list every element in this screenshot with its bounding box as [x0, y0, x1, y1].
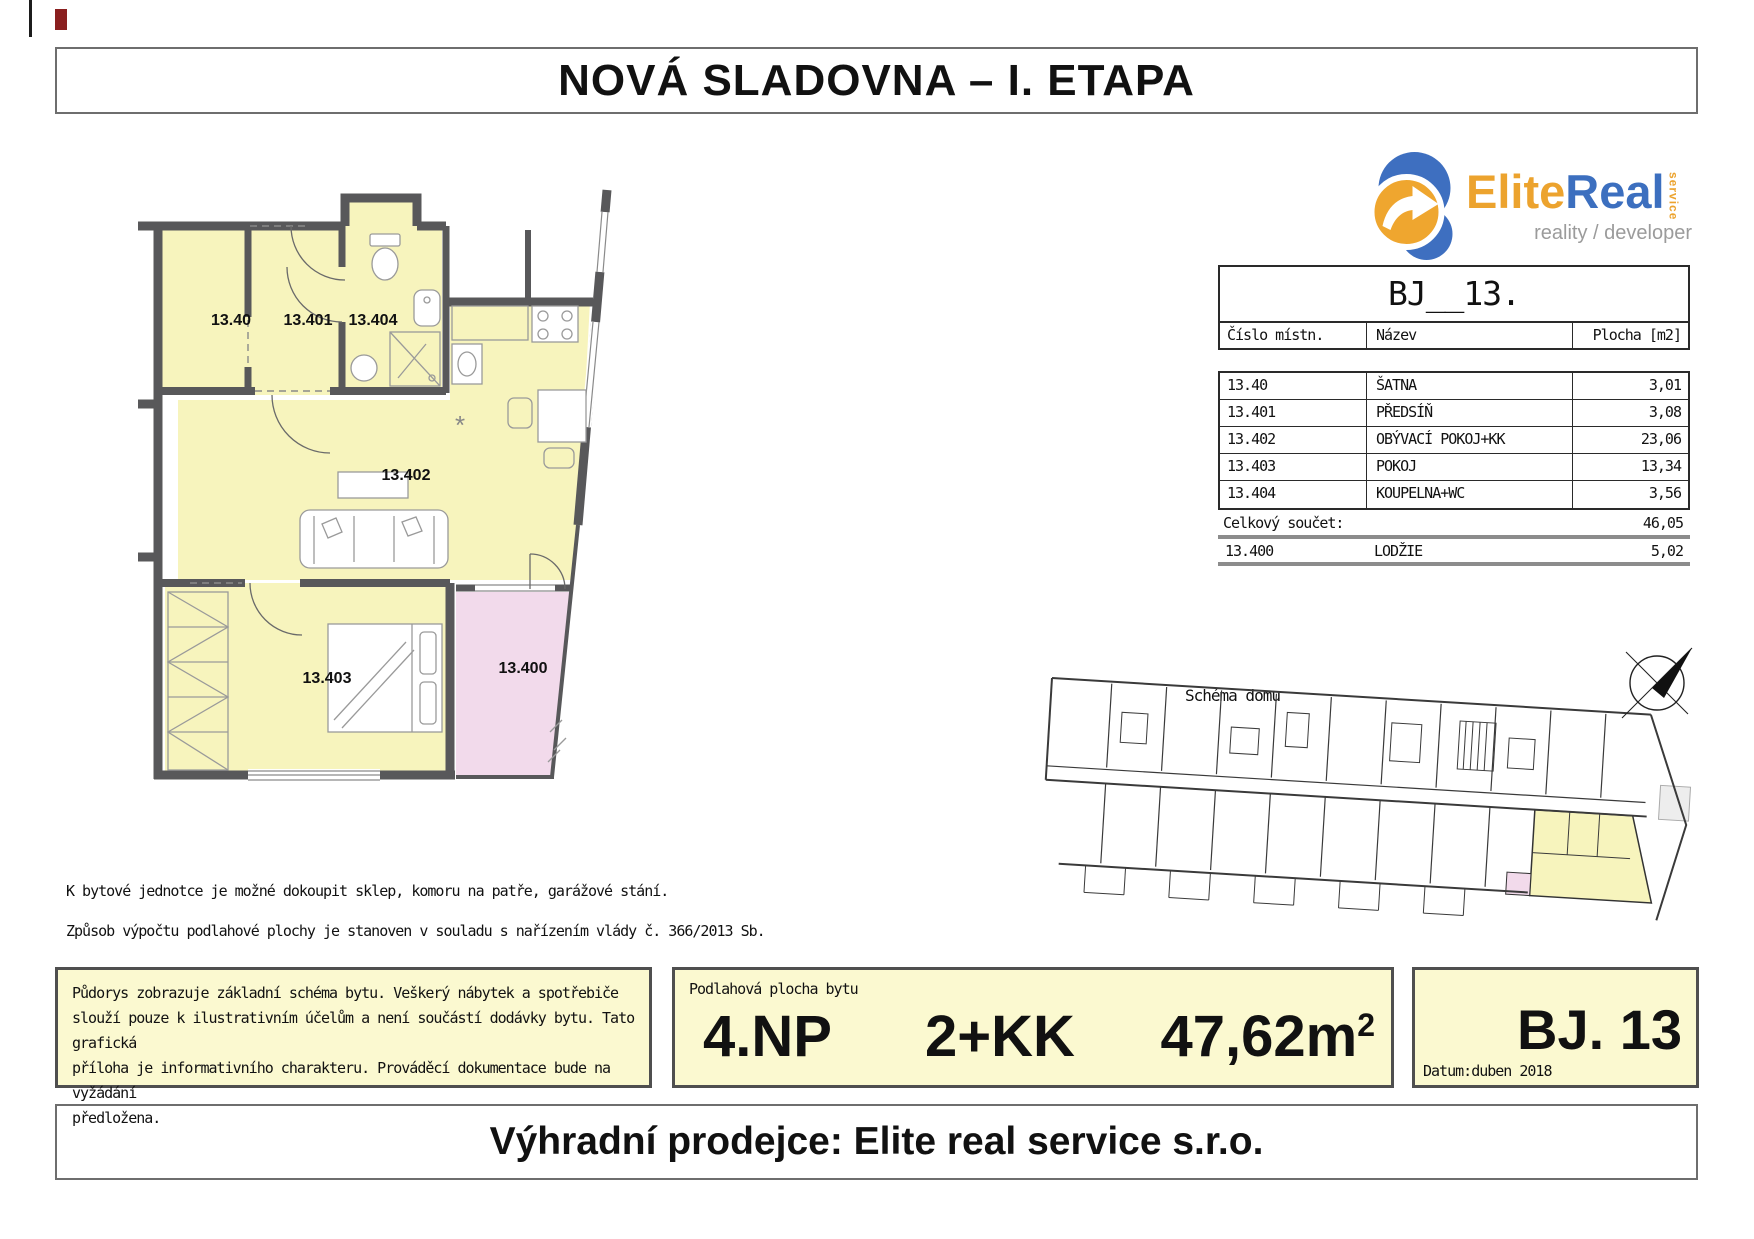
- room-area: 3,01: [1573, 373, 1688, 399]
- area-value: 47,62m: [1160, 1004, 1357, 1069]
- disclaimer-box: Půdorys zobrazuje základní schéma bytu. …: [55, 967, 652, 1088]
- room-name: KOUPELNA+WC: [1367, 481, 1573, 508]
- table-row: 13.401 PŘEDSÍŇ 3,08: [1220, 400, 1688, 427]
- scan-artifact-line: [29, 0, 32, 37]
- room-name: ŠATNA: [1367, 373, 1573, 399]
- date-line: Datum:duben 2018: [1423, 1062, 1552, 1080]
- room-area: 23,06: [1573, 427, 1688, 453]
- unit-table-body: 13.40 ŠATNA 3,01 13.401 PŘEDSÍŇ 3,08 13.…: [1218, 371, 1690, 510]
- total-label: Celkový součet:: [1218, 510, 1343, 535]
- logo-service-text: service: [1668, 172, 1680, 220]
- summary-box: Podlahová plocha bytu 4.NP 2+KK 47,62m2: [672, 967, 1394, 1088]
- seller-line: Výhradní prodejce: Elite real service s.…: [490, 1120, 1264, 1163]
- room-label-predsin: 13.401: [284, 312, 333, 329]
- kitchen-sink-icon: [452, 344, 482, 384]
- disclaimer-line: příloha je informativního charakteru. Pr…: [72, 1056, 649, 1106]
- unit-table-header: Číslo místn. Název Plocha [m2]: [1218, 323, 1690, 350]
- project-title-box: NOVÁ SLADOVNA – I. ETAPA: [55, 47, 1698, 114]
- room-label-pokoj: 13.403: [303, 670, 352, 687]
- footer-box: Výhradní prodejce: Elite real service s.…: [55, 1104, 1698, 1180]
- note-regulation: Způsob výpočtu podlahové plochy je stano…: [66, 922, 765, 940]
- table-row: 13.403 POKOJ 13,34: [1220, 454, 1688, 481]
- unit-table-title: BJ__13.: [1218, 265, 1690, 323]
- top-rooms-fill: [160, 222, 442, 395]
- room-label-lodzie: 13.400: [499, 660, 548, 677]
- table-row: 13.402 OBÝVACÍ POKOJ+KK 23,06: [1220, 427, 1688, 454]
- room-name: PŘEDSÍŇ: [1367, 400, 1573, 426]
- floor-number: 4.NP: [703, 1008, 832, 1066]
- area-superscript: 2: [1357, 1007, 1375, 1043]
- elitereal-logo-text: EliteRealservice: [1466, 168, 1680, 220]
- unit-id: BJ. 13: [1517, 1002, 1682, 1058]
- table-row: 13.404 KOUPELNA+WC 3,56: [1220, 481, 1688, 508]
- logo-tagline: reality / developer: [1466, 222, 1692, 245]
- floor-plan-sheet: NOVÁ SLADOVNA – I. ETAPA EliteRealservic…: [0, 0, 1754, 1239]
- scan-artifact-mark: [55, 9, 67, 30]
- col-header-name: Název: [1367, 323, 1573, 348]
- project-title: NOVÁ SLADOVNA – I. ETAPA: [558, 56, 1195, 105]
- layout-type: 2+KK: [925, 1008, 1075, 1066]
- table-loggia-row: 13.400 LODŽIE 5,02: [1218, 539, 1690, 566]
- room-area: 13,34: [1573, 454, 1688, 480]
- room-id: 13.401: [1220, 400, 1367, 426]
- room-label-obyvaci: 13.402: [382, 467, 431, 484]
- room-id: 13.400: [1218, 539, 1365, 562]
- sofa-icon: [300, 510, 448, 568]
- compass-icon: [1612, 636, 1704, 728]
- building-schema: [1042, 638, 1707, 928]
- total-value: 46,05: [1343, 510, 1690, 535]
- unit-id-box: BJ. 13 Datum:duben 2018: [1412, 967, 1699, 1088]
- room-label-koupelna: 13.404: [349, 312, 398, 329]
- kitchen-symbol: *: [455, 410, 465, 440]
- room-name: OBÝVACÍ POKOJ+KK: [1367, 427, 1573, 453]
- room-area: 3,08: [1573, 400, 1688, 426]
- note-extras: K bytové jednotce je možné dokoupit skle…: [66, 882, 668, 900]
- logo-brand-primary: Elite: [1466, 168, 1565, 215]
- disclaimer-line: slouží pouze k ilustrativním účelům a ne…: [72, 1006, 649, 1056]
- table-total-row: Celkový součet: 46,05: [1218, 510, 1690, 539]
- room-name: LODŽIE: [1365, 539, 1571, 562]
- room-id: 13.403: [1220, 454, 1367, 480]
- date-value: duben 2018: [1471, 1062, 1551, 1080]
- unit-area-table: BJ__13. Číslo místn. Název Plocha [m2] 1…: [1218, 265, 1690, 566]
- logo-brand-secondary: Real: [1565, 168, 1664, 215]
- disclaimer-line: Půdorys zobrazuje základní schéma bytu. …: [72, 981, 649, 1006]
- room-area: 5,02: [1571, 539, 1690, 562]
- dining-table: [538, 390, 586, 442]
- sink-icon: [414, 290, 440, 326]
- washbasin-icon: [351, 355, 377, 381]
- toilet-icon: [372, 248, 398, 280]
- table-row: 13.40 ŠATNA 3,01: [1220, 373, 1688, 400]
- room-id: 13.40: [1220, 373, 1367, 399]
- elitereal-logo-icon: [1362, 148, 1468, 260]
- room-id: 13.402: [1220, 427, 1367, 453]
- summary-label: Podlahová plocha bytu: [689, 980, 858, 998]
- room-id: 13.404: [1220, 481, 1367, 508]
- col-header-room-number: Číslo místn.: [1220, 323, 1367, 348]
- col-header-area: Plocha [m2]: [1573, 323, 1688, 348]
- date-label: Datum:: [1423, 1062, 1471, 1080]
- room-area: 3,56: [1573, 481, 1688, 508]
- room-label-satna: 13.40: [211, 312, 251, 329]
- room-name: POKOJ: [1367, 454, 1573, 480]
- total-area: 47,62m2: [1160, 1008, 1375, 1066]
- apartment-floor-plan: 13.40 13.401 13.404 13.402 13.403 13.400…: [130, 172, 635, 817]
